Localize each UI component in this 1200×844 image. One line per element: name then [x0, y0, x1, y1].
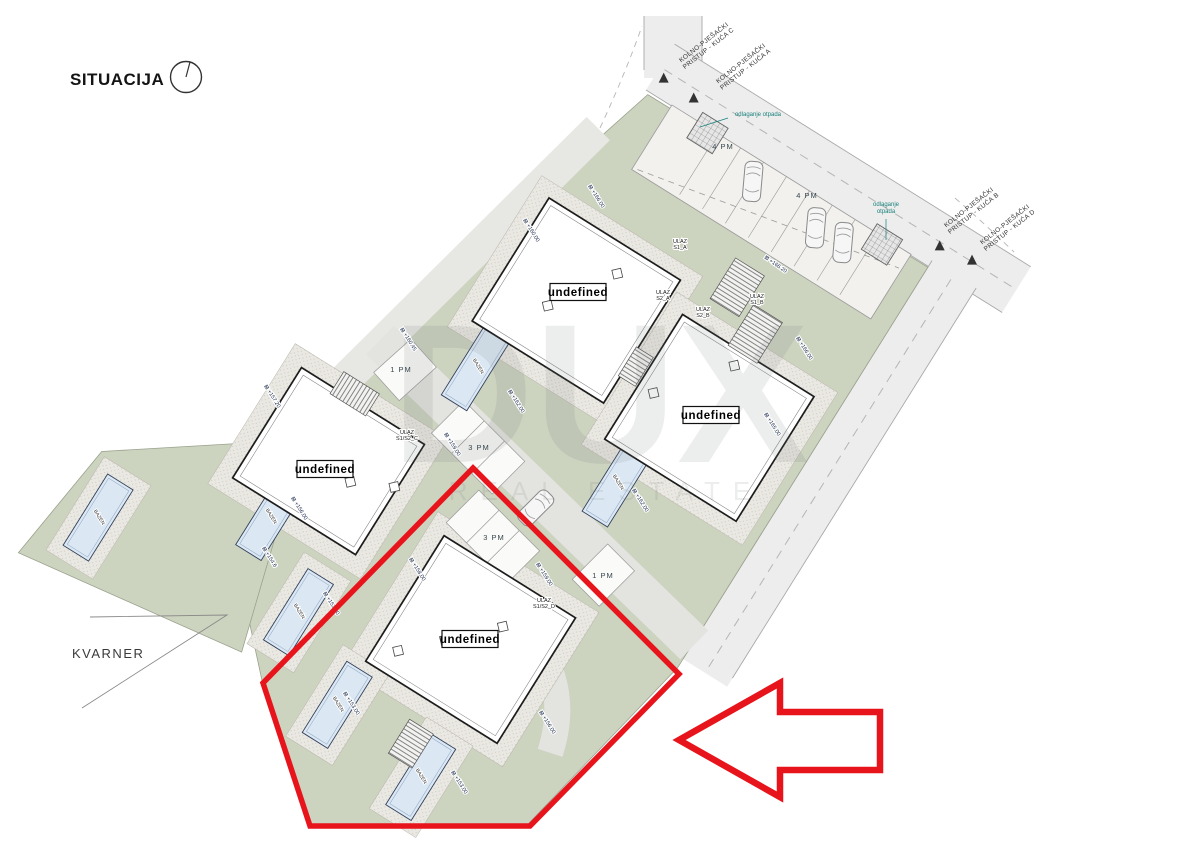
site-plan-page: DUX REAL ESTATE ⊠ +160.00⊠ +166.00⊠ +166…	[0, 0, 1200, 844]
parking-count-label: 4 PM	[712, 142, 734, 151]
watermark-logo-text: DUX	[391, 283, 809, 504]
parking-count-label: 4 PM	[796, 191, 818, 200]
entrance-label: ULAZS1_B	[750, 294, 765, 306]
building-name-label: undefined	[548, 287, 608, 299]
parking-count-label: 3 PM	[483, 533, 505, 542]
entrance-label: ULAZS2_A	[656, 290, 671, 302]
parking-count-label: 3 PM	[468, 443, 490, 452]
highlight-arrow-icon	[679, 683, 880, 797]
site-plan-drawing: DUX REAL ESTATE ⊠ +160.00⊠ +166.00⊠ +166…	[0, 0, 1200, 844]
parking-count-label: 1 PM	[592, 571, 614, 580]
north-indicator-icon	[171, 62, 202, 93]
parking-count-label: 1 PM	[390, 365, 412, 374]
road-access-label: KOLNO-PJEŠAČKIPRISTUP - KUĆA B	[941, 184, 1000, 235]
building-name-label: undefined	[440, 634, 500, 646]
dux-watermark: DUX REAL ESTATE	[391, 283, 809, 506]
waste-disposal-label: odlaganje otpada	[735, 112, 782, 118]
building-name-label: undefined	[681, 410, 741, 422]
region-label: KVARNER	[72, 646, 144, 661]
building-name-label: undefined	[295, 464, 355, 476]
page-title: SITUACIJA	[70, 70, 164, 89]
road-access-label: KOLNO-PJEŠAČKIPRISTUP - KUĆA A	[713, 40, 772, 91]
entrance-label: ULAZS2_B	[696, 307, 711, 319]
entrance-label: ULAZS1_A	[673, 239, 688, 251]
